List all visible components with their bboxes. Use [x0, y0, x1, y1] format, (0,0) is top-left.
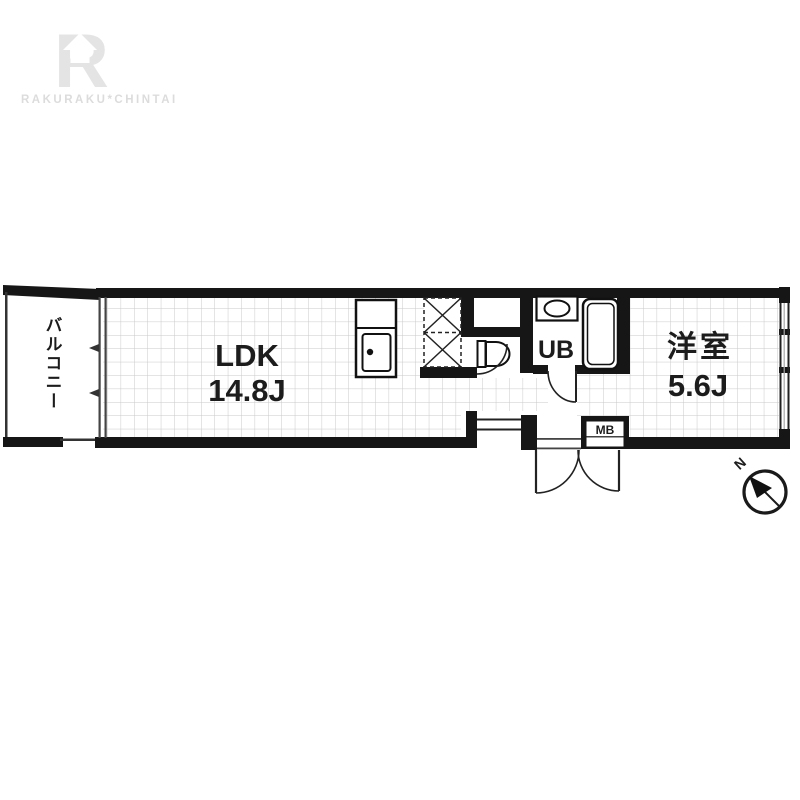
wall-ldk-bottom	[95, 437, 477, 448]
kitchen-sink	[363, 334, 391, 371]
window-arrow-icon	[89, 344, 99, 352]
toilet-tank	[478, 341, 486, 367]
wall-balcony-top	[3, 285, 100, 300]
washbasin-icon	[537, 297, 578, 321]
entrance-threshold-line-2	[537, 448, 581, 450]
ldk-label: LDK	[215, 338, 279, 373]
balcony-window-line-1	[99, 297, 101, 438]
wall-western-bottom	[625, 437, 790, 449]
brand-logo: R RAKURAKU*CHINTAI	[21, 19, 178, 106]
ldk-floor	[103, 297, 461, 437]
western-room-floor-ext	[577, 373, 630, 417]
meter-box-label: MB	[596, 423, 615, 437]
closet	[424, 298, 461, 367]
balcony-window-line-2	[105, 297, 107, 438]
wall-top	[96, 288, 790, 298]
entrance-door-right-arc	[578, 450, 619, 491]
wall-right-top	[779, 287, 790, 303]
compass-icon: N	[731, 454, 786, 513]
entrance-threshold-line-1	[537, 438, 581, 440]
floorplan-page: R RAKURAKU*CHINTAI	[0, 0, 800, 800]
ub-door-arc	[548, 371, 576, 402]
balcony-label: バルコニー	[43, 316, 63, 411]
balcony-edge-line	[60, 439, 98, 442]
window-arrow-icon	[89, 389, 99, 397]
kitchen-counter	[356, 300, 396, 377]
south-window-line-1	[477, 419, 521, 421]
entrance-door-left-arc	[536, 450, 579, 493]
compass-north-label: N	[731, 454, 749, 473]
bathtub-icon	[583, 299, 618, 369]
wall-south-step	[466, 411, 477, 442]
washbasin-bowl	[545, 301, 570, 317]
south-window-line-2	[477, 429, 521, 431]
brand-name: RAKURAKU*CHINTAI	[21, 94, 178, 106]
unit-bath-label: UB	[538, 336, 574, 364]
western-room-label: 洋室	[667, 330, 733, 364]
wall-ub-left	[520, 296, 533, 373]
bathtub-inner	[588, 304, 615, 365]
faucet-icon	[367, 349, 373, 355]
ldk-size-label: 14.8J	[208, 373, 286, 408]
east-window-line-1	[780, 303, 782, 429]
wall-ub-bottom-left	[533, 365, 548, 374]
meter-box: MB	[581, 416, 629, 449]
wall-balcony-left	[5, 292, 8, 440]
wall-entrance-left-jamb	[521, 415, 537, 450]
wall-balcony-bottom	[3, 437, 63, 447]
east-window-center-line	[784, 303, 785, 429]
east-window-line-2	[788, 303, 790, 429]
hallway-floor	[461, 378, 548, 411]
wall-below-toilet	[420, 367, 477, 378]
wall-right-bottom	[779, 429, 790, 449]
floorplan-image: R RAKURAKU*CHINTAI	[0, 0, 800, 800]
western-room-size-label: 5.6J	[668, 368, 728, 403]
